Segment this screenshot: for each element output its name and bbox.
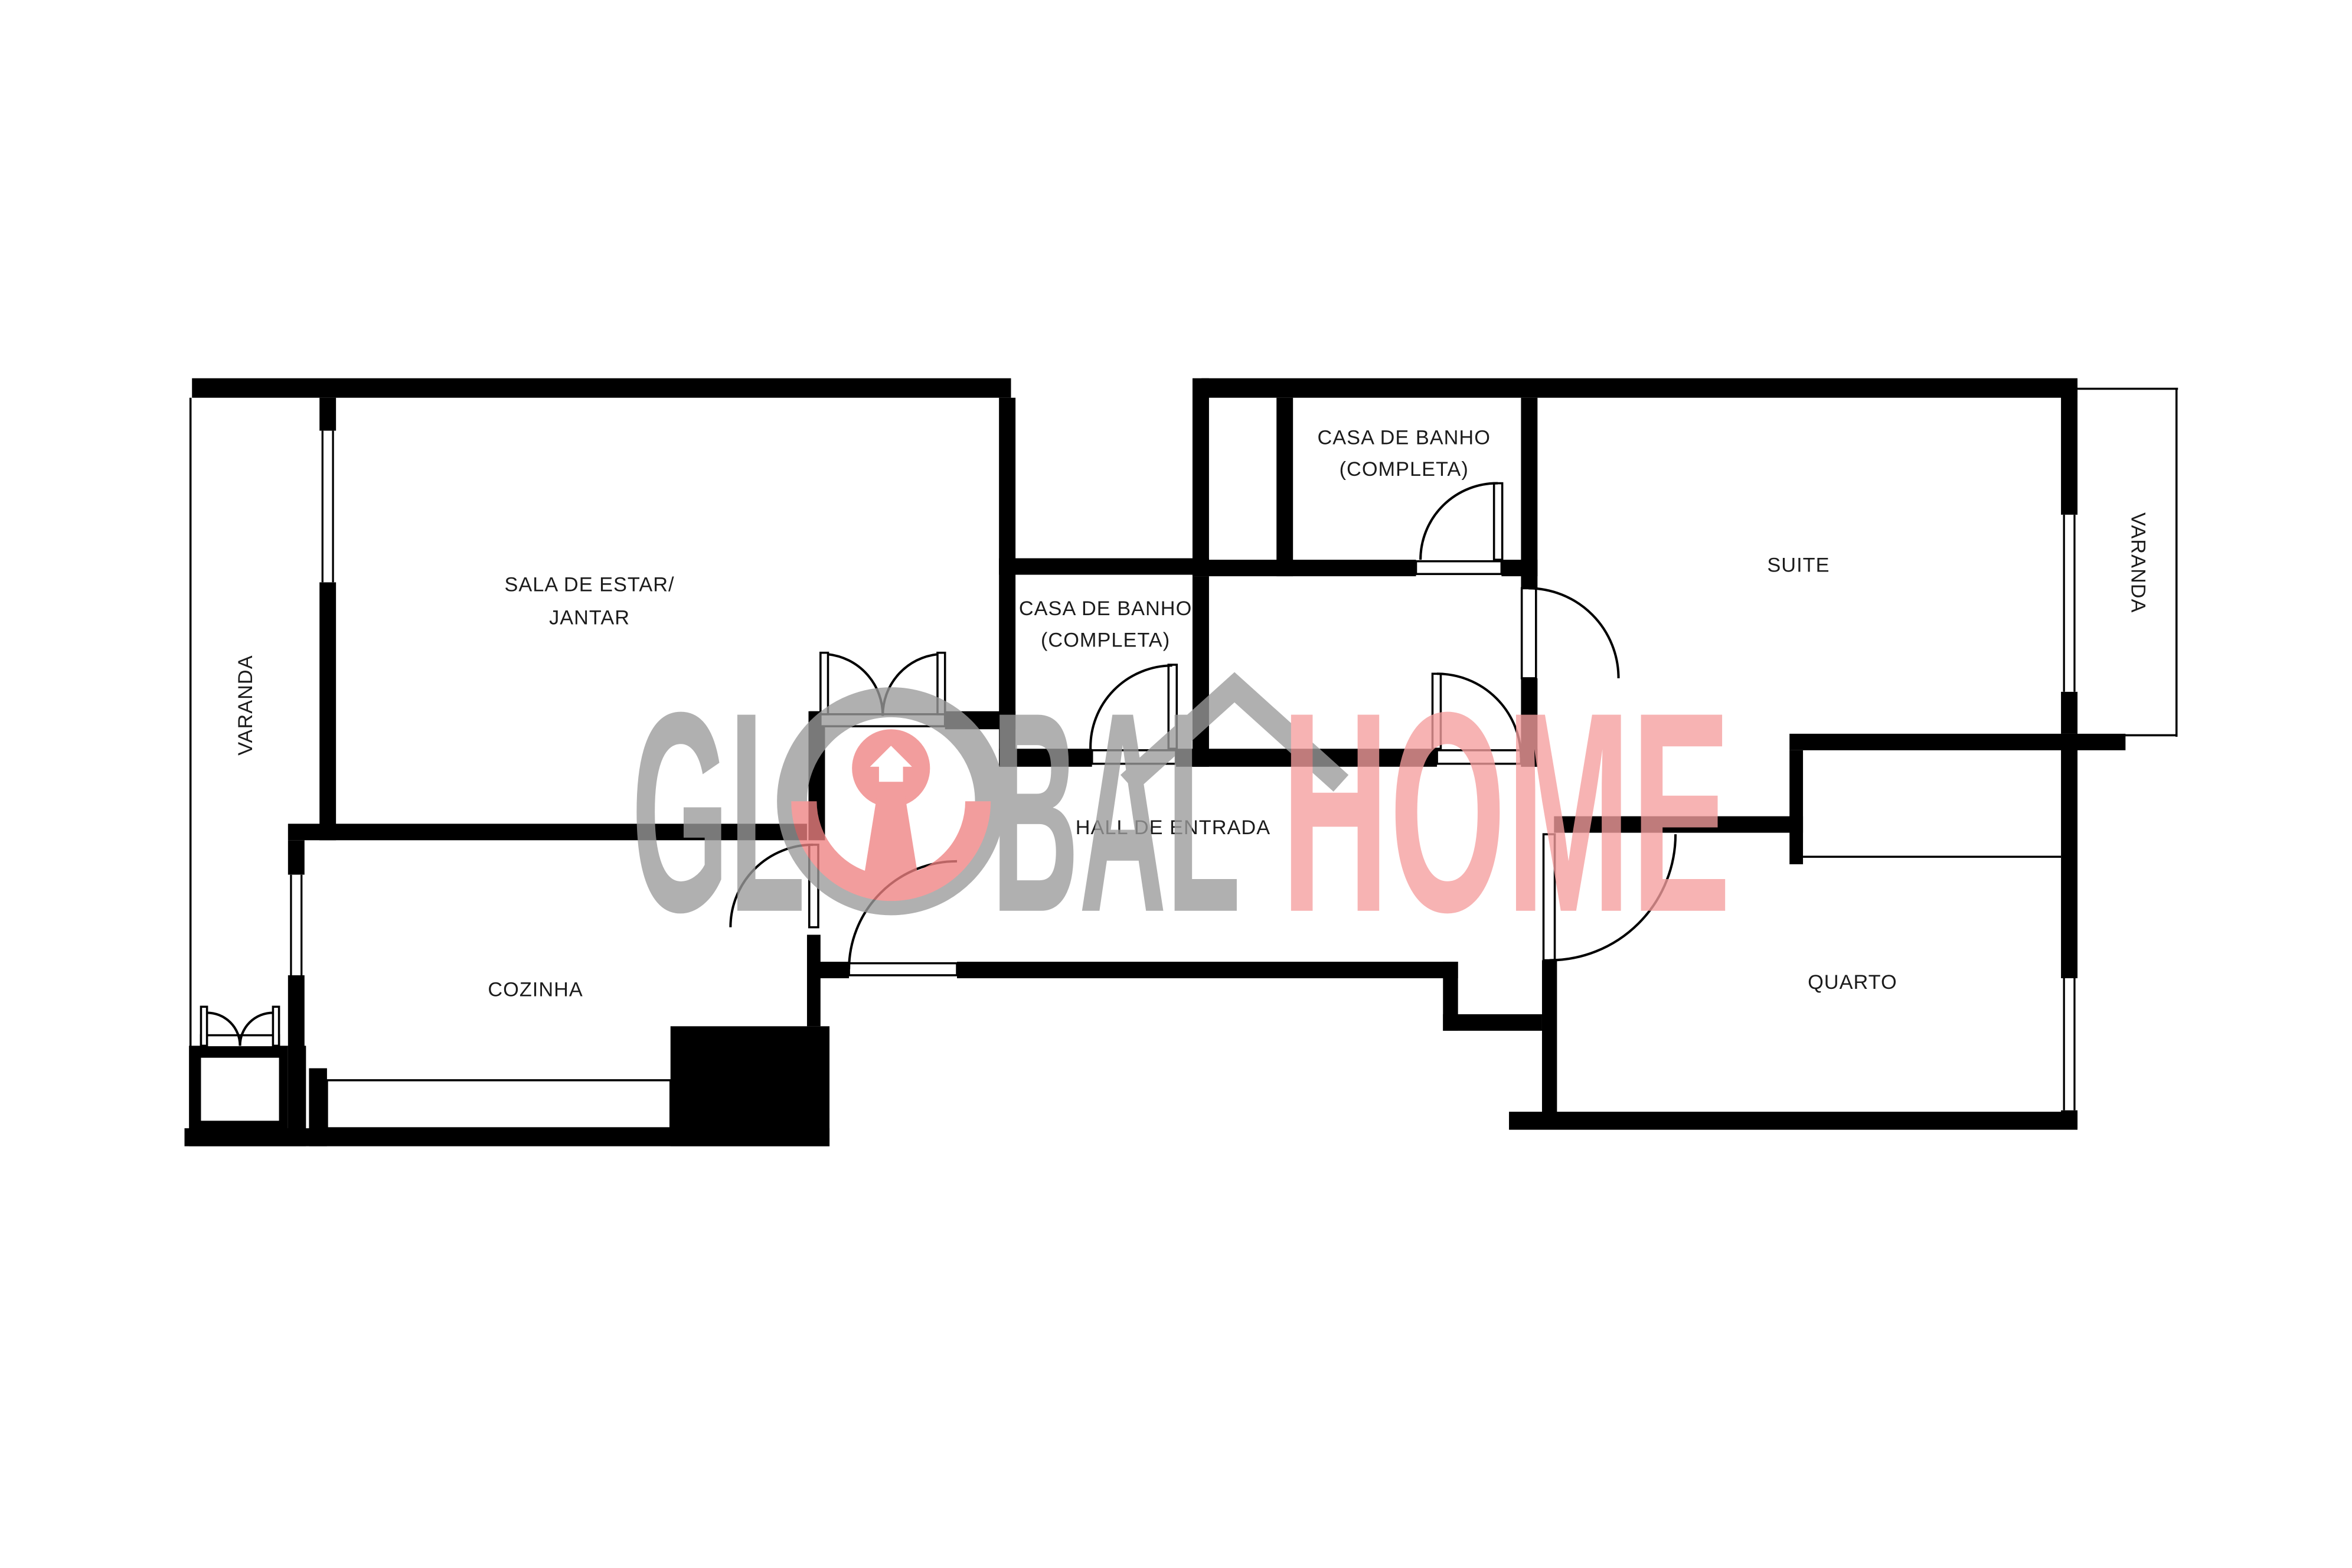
wall-shaft-left (1193, 378, 1209, 576)
wall-bathroom1-top (999, 558, 1209, 575)
wall-suite-right-lower (2061, 692, 2077, 734)
label-cozinha: COZINHA (488, 979, 583, 1001)
wall-cozinha-left-upper (288, 840, 305, 874)
label-sala-line1: SALA DE ESTAR/ (505, 574, 675, 596)
label-bathroom-top-line1: CASA DE BANHO (1318, 427, 1491, 449)
wall-suite-right-upper (2061, 387, 2077, 515)
wall-hall-bottom-right (1443, 1014, 1542, 1031)
door-sill (1416, 561, 1502, 574)
wall-quarto-right-upper (2061, 734, 2077, 978)
label-sala-line2: JANTAR (549, 606, 630, 629)
wall-cozinha-left-lower (288, 975, 305, 1047)
mass-bottom-band (185, 1128, 830, 1146)
wall-sala-left-upper (319, 398, 336, 431)
logo-text-home: HOME (1281, 654, 1731, 972)
wall-sala-left-lower (319, 582, 336, 840)
watermark-logo: GL BAL HOME (632, 654, 1731, 972)
window-suite-right (2061, 515, 2077, 692)
door-leaf (821, 653, 828, 714)
wall-quarto-left (1542, 961, 1557, 1129)
window-cozinha-left (288, 875, 305, 975)
wall-top-right (1201, 378, 2077, 398)
wall-bathroom2-bottom-a (1193, 560, 1416, 576)
wall-hall-bottom-tab (818, 962, 849, 978)
floor-plan: SALA DE ESTAR/ JANTAR COZINHA HALL DE EN… (0, 0, 2352, 1568)
door-sill (849, 963, 957, 975)
box-inner-white (201, 1058, 279, 1121)
label-bathroom-middle-line2: (COMPLETA) (1041, 629, 1170, 652)
door-leaf (273, 1007, 279, 1046)
label-varanda-left: VARANDA (234, 655, 257, 755)
label-bathroom-middle-line1: CASA DE BANHO (1019, 597, 1192, 620)
label-quarto: QUARTO (1808, 971, 1897, 994)
wall-top-left (192, 378, 1011, 398)
wall-quarto-bottom (1509, 1112, 2077, 1129)
wall-cozinha-right-stub (807, 935, 821, 1026)
wall-shaft-right (1276, 398, 1293, 576)
door-leaf (201, 1007, 207, 1046)
door-leaf (1494, 484, 1502, 560)
window-quarto-right (2061, 978, 2077, 1110)
label-suite: SUITE (1767, 554, 1830, 576)
floor-plan-page: SALA DE ESTAR/ JANTAR COZINHA HALL DE EN… (0, 0, 2352, 1568)
window-sala-left (319, 431, 336, 583)
wall-suite-left-upper (1521, 398, 1537, 589)
wall-closet-left (1789, 750, 1803, 864)
label-varanda-right: VARANDA (2127, 512, 2150, 613)
label-bathroom-top-line2: (COMPLETA) (1340, 458, 1469, 481)
